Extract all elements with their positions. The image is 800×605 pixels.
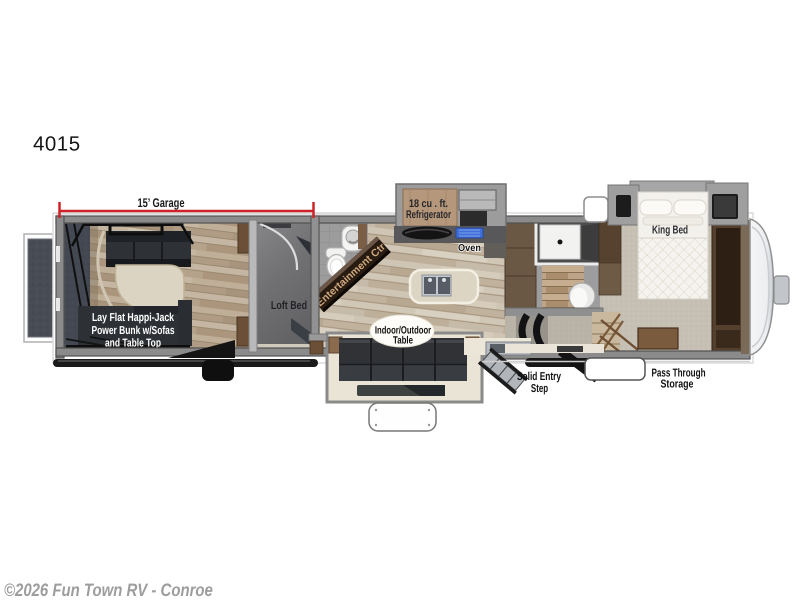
svg-text:Step: Step (531, 383, 548, 395)
svg-text:Loft Bed: Loft Bed (271, 300, 307, 312)
svg-text:Lay Flat Happi-Jack: Lay Flat Happi-Jack (92, 312, 175, 324)
svg-text:Table: Table (393, 335, 413, 347)
svg-text:Power Bunk w/Sofas: Power Bunk w/Sofas (91, 325, 174, 337)
svg-text:15’ Garage: 15’ Garage (137, 196, 184, 210)
svg-text:4015: 4015 (33, 133, 81, 156)
svg-text:King Bed: King Bed (652, 225, 688, 237)
svg-text:Storage: Storage (661, 379, 694, 391)
svg-text:Oven: Oven (458, 243, 481, 254)
svg-text:Solid Entry: Solid Entry (517, 371, 561, 383)
svg-text:Refrigerator: Refrigerator (406, 209, 452, 221)
svg-text:©2026 Fun Town RV - Conroe: ©2026 Fun Town RV - Conroe (4, 580, 213, 600)
